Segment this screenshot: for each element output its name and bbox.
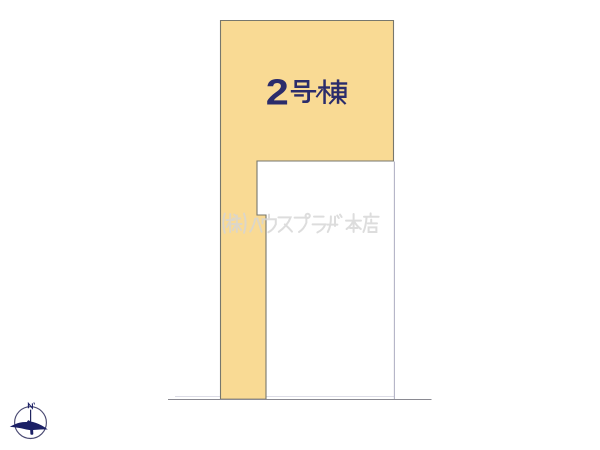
svg-text:2: 2 (266, 73, 289, 113)
